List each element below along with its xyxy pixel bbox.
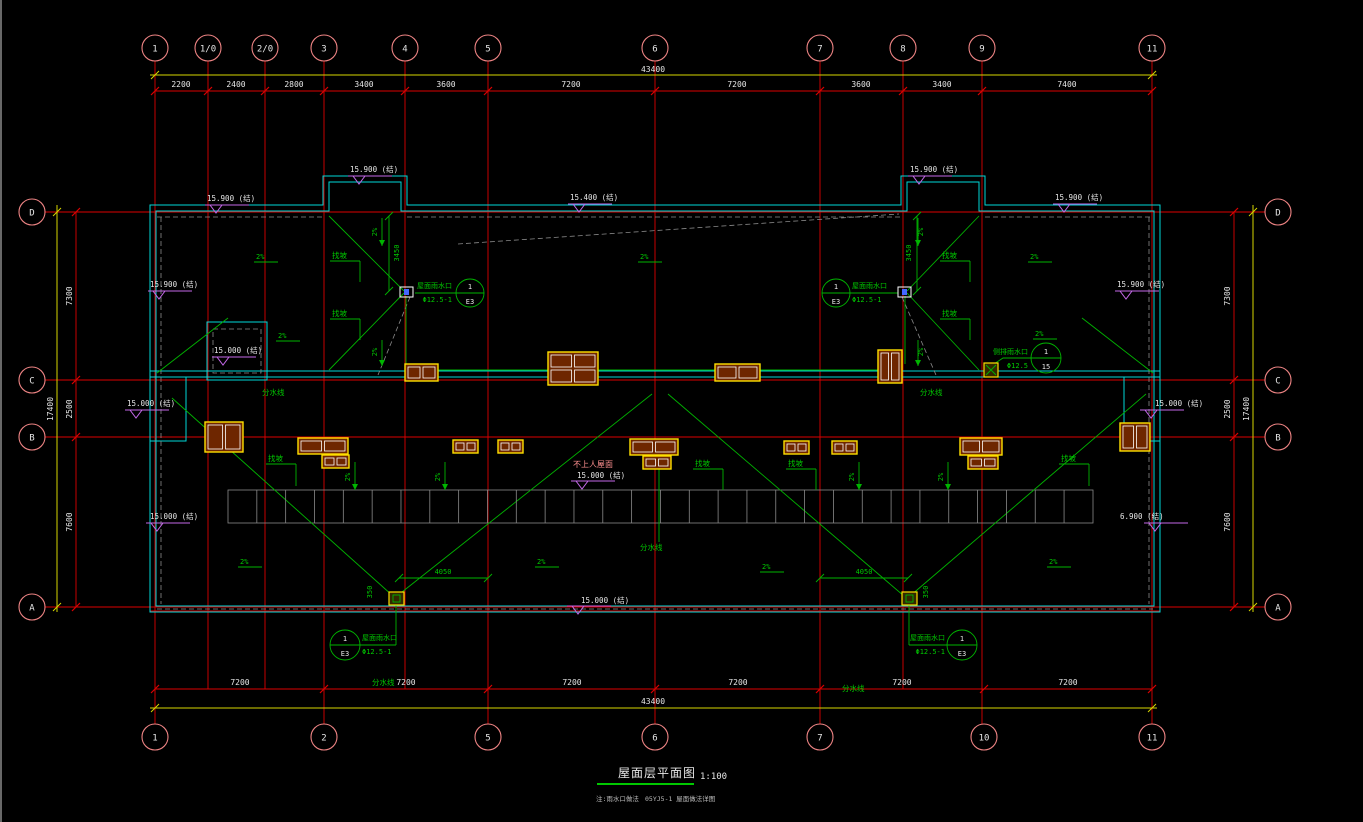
level-label: 15.400 (结) [570, 192, 618, 202]
axis-label: 6 [652, 734, 657, 744]
slope-arrow [442, 462, 448, 490]
callout-number: 1 [468, 283, 472, 291]
roof-vent [784, 441, 809, 454]
dim-ridge: 3450 [393, 245, 401, 262]
valley-line-label: 分水线 [372, 677, 395, 687]
callout-number: 1 [1044, 348, 1048, 356]
level-label: 15.900 (结) [350, 164, 398, 174]
roof-vent [630, 439, 678, 455]
dim-top: 2400 [226, 80, 245, 89]
drawing-note-1: 注:雨水口做法 [596, 794, 639, 803]
callout-number: 1 [960, 635, 964, 643]
leader-line [330, 319, 360, 340]
dim-top: 7200 [727, 80, 746, 89]
dim-bottom: 7200 [1058, 678, 1077, 687]
slope-label: 2% [917, 227, 925, 236]
leader-line [940, 261, 970, 282]
axis-label: A [1275, 604, 1281, 614]
level-marker [1144, 523, 1188, 531]
valley-line-label: 分水线 [640, 542, 663, 552]
drain-label: 侧排雨水口 [993, 347, 1028, 356]
leader-line [1059, 464, 1089, 486]
axis-label: 1 [152, 45, 157, 55]
level-label: 15.000 (结) [150, 511, 198, 521]
valley-line-label: 分水线 [842, 683, 865, 693]
valley-line-label: 分水线 [920, 387, 943, 397]
dim-bottom: 7200 [892, 678, 911, 687]
slope-label: 2% [762, 563, 771, 571]
level-label: 15.900 (结) [910, 164, 958, 174]
slope-label: 2% [848, 472, 856, 481]
level-label: 15.900 (结) [207, 193, 255, 203]
dim-total-bottom: 43400 [641, 697, 665, 706]
roof-vent [643, 456, 671, 469]
roof-vent [322, 455, 349, 468]
roof-vent [968, 456, 998, 469]
slope-label: 2% [434, 472, 442, 481]
dim-left: 2500 [65, 399, 74, 418]
dim-drain-span: 4050 [856, 568, 873, 576]
roof-plan-drawing: 1E31E31151E31E311/02/0345678911125671011… [0, 0, 1363, 822]
level-label: 6.900 (结) [1120, 511, 1164, 521]
dim-bottom: 7200 [230, 678, 249, 687]
dim-bottom: 7200 [396, 678, 415, 687]
axis-label: C [1275, 377, 1280, 387]
slope-label: 2% [937, 472, 945, 481]
level-marker [212, 357, 256, 365]
drain-label: Φ12.5-1 [422, 296, 452, 304]
axis-label: 2/0 [257, 45, 273, 55]
axis-label: 6 [652, 45, 657, 55]
slope-label: 2% [278, 332, 287, 340]
dim-right: 7300 [1223, 286, 1232, 305]
axis-label: B [1275, 434, 1280, 444]
roof-vent [453, 440, 478, 453]
slope-note-label: 找坡 [942, 250, 957, 260]
dim-ridge: 3450 [905, 245, 913, 262]
dim-drain-offset: 350 [922, 586, 930, 599]
level-marker [908, 176, 952, 184]
dim-total-right: 17400 [1242, 397, 1251, 421]
drain-label: Φ12.5 [1007, 362, 1028, 370]
callout-sheet: E3 [958, 650, 966, 658]
slope-label: 2% [371, 347, 379, 356]
dim-right: 2500 [1223, 399, 1232, 418]
roof-drain-symbol [389, 592, 404, 605]
axis-label: C [29, 377, 34, 387]
drawing-title: 屋面层平面图 [618, 766, 696, 780]
axis-label: 11 [1147, 734, 1158, 744]
drain-label: 屋面雨水口 [852, 281, 887, 290]
level-marker [1140, 410, 1184, 418]
drain-label: 屋面雨水口 [362, 633, 397, 642]
slope-note-label: 找坡 [268, 453, 283, 463]
slope-label: 2% [640, 253, 649, 261]
title-block: 屋面层平面图 1:100 注:雨水口做法 05YJ5-1 屋面做法详图 [596, 766, 727, 803]
roof-drain-symbol [902, 592, 917, 605]
grid-lines [45, 61, 1265, 724]
leader-line [330, 261, 360, 282]
dim-right: 7600 [1223, 512, 1232, 531]
slope-arrow [352, 462, 358, 490]
dim-drain-offset: 350 [366, 586, 374, 599]
axis-label: 11 [1147, 45, 1158, 55]
drain-label: 屋面雨水口 [910, 633, 945, 642]
level-marker [125, 410, 169, 418]
axis-label: 7 [817, 734, 822, 744]
axis-label: 9 [979, 45, 984, 55]
roof-vent [405, 364, 438, 381]
dim-top: 2800 [284, 80, 303, 89]
drain-label: Φ12.5-1 [915, 648, 945, 656]
dim-top: 7400 [1057, 80, 1076, 89]
slope-note-label: 找坡 [1061, 453, 1077, 463]
level-label: 15.000 (结) [581, 595, 629, 605]
dim-top: 3600 [851, 80, 870, 89]
dim-total-top: 43400 [641, 65, 665, 74]
dim-top: 3400 [932, 80, 951, 89]
axis-label: A [29, 604, 35, 614]
slope-label: 2% [256, 253, 265, 261]
axis-label: 3 [321, 45, 326, 55]
slope-arrow [945, 462, 951, 490]
dim-total-left: 17400 [46, 397, 55, 421]
roof-vent [205, 422, 243, 452]
dim-bottom: 7200 [562, 678, 581, 687]
slope-label: 2% [344, 472, 352, 481]
roof-vent [832, 441, 857, 454]
callout-sheet: E3 [341, 650, 349, 658]
drawing-note-2: 05YJ5-1 屋面做法详图 [645, 794, 715, 803]
dim-left: 7600 [65, 512, 74, 531]
dim-drain-span: 4050 [435, 568, 452, 576]
drain-label: Φ12.5-1 [362, 648, 392, 656]
drawing-scale: 1:100 [700, 772, 727, 782]
callout-number: 1 [834, 283, 838, 291]
level-marker [348, 176, 392, 184]
level-label: 15.900 (结) [150, 279, 198, 289]
slope-note-label: 找坡 [332, 250, 347, 260]
level-marker [146, 523, 190, 531]
level-marker [571, 481, 615, 489]
callout-sheet: 15 [1042, 363, 1050, 371]
roof-vent [298, 438, 348, 454]
leader-line [786, 469, 816, 490]
dim-bottom: 7200 [728, 678, 747, 687]
axis-label: 1/0 [200, 45, 216, 55]
roof-vent [715, 364, 760, 381]
slope-arrow [379, 218, 385, 246]
drain-label: 屋面雨水口 [417, 281, 452, 290]
axis-label: D [29, 209, 34, 219]
cad-canvas: 1E31E31151E31E311/02/0345678911125671011… [0, 0, 1363, 822]
slope-note-label: 找坡 [788, 458, 803, 468]
roof-vent [960, 438, 1002, 455]
axis-label: B [29, 434, 34, 444]
leader-line [266, 464, 296, 486]
slope-label: 2% [917, 347, 925, 356]
slope-label: 2% [1030, 253, 1039, 261]
level-label: 15.000 (结) [1155, 398, 1203, 408]
slope-label: 2% [537, 558, 546, 566]
callout-sheet: E3 [832, 298, 840, 306]
dim-top: 3600 [436, 80, 455, 89]
level-label: 15.900 (结) [1055, 192, 1103, 202]
axis-label: 5 [485, 734, 490, 744]
leader-line [693, 469, 723, 490]
dim-top: 2200 [171, 80, 190, 89]
level-label: 15.000 (结) [577, 470, 625, 480]
slope-note-label: 找坡 [695, 458, 710, 468]
roof-vent [878, 350, 902, 383]
slope-arrow [856, 462, 862, 490]
axis-label: 8 [900, 45, 905, 55]
slope-note-label: 找坡 [332, 308, 347, 318]
axis-label: 5 [485, 45, 490, 55]
no-access-roof-label: 不上人屋面 [573, 460, 613, 469]
slope-label: 2% [371, 227, 379, 236]
dim-top: 7200 [561, 80, 580, 89]
level-label: 15.000 (结) [214, 345, 262, 355]
slope-note-label: 找坡 [942, 308, 957, 318]
axis-label: 10 [979, 734, 990, 744]
slope-label: 2% [1035, 330, 1044, 338]
axis-label: 4 [402, 45, 407, 55]
axis-label: 7 [817, 45, 822, 55]
level-label: 15.900 (结) [1117, 279, 1165, 289]
slope-label: 2% [240, 558, 249, 566]
callout-number: 1 [343, 635, 347, 643]
axis-label: D [1275, 209, 1280, 219]
slope-arrow [379, 340, 385, 366]
roof-vent [548, 352, 598, 385]
valley-line-label: 分水线 [262, 387, 285, 397]
leader-line [940, 319, 970, 340]
level-label: 15.000 (结) [127, 398, 175, 408]
axis-label: 2 [321, 734, 326, 744]
axis-label: 1 [152, 734, 157, 744]
roof-vent [498, 440, 523, 453]
roof-vent [1120, 423, 1150, 451]
side-drain-symbol [984, 363, 998, 377]
dim-top: 3400 [354, 80, 373, 89]
drain-label: Φ12.5-1 [852, 296, 882, 304]
slope-label: 2% [1049, 558, 1058, 566]
callout-sheet: E3 [466, 298, 474, 306]
dim-left: 7300 [65, 286, 74, 305]
